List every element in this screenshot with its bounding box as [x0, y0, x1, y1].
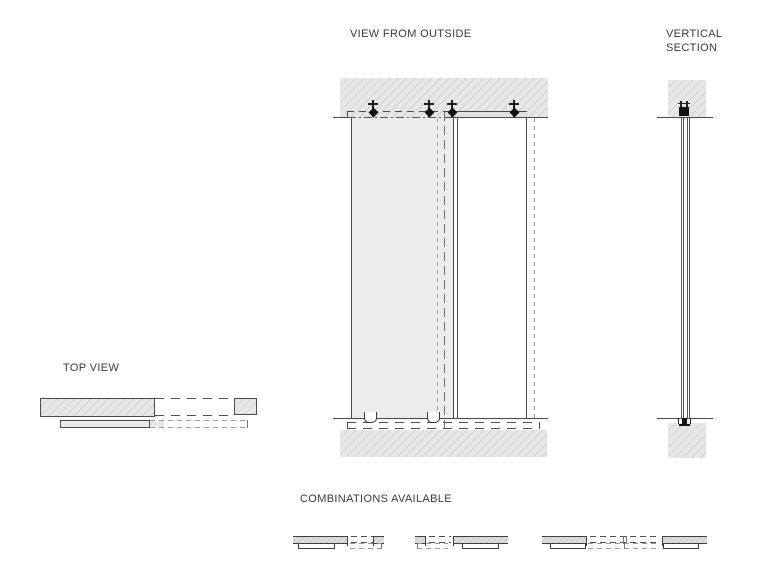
combo1-panel-open-tick — [381, 543, 382, 549]
combo1-panel-open-bottom-dash — [350, 548, 381, 549]
fixed-panel-left-edge-inner — [457, 118, 458, 418]
combo1-panel-open-top-dash — [350, 543, 381, 544]
hidden-floor-track-top-dash — [347, 422, 540, 423]
combo3-opening-top-dash — [590, 536, 658, 537]
track-bracket-icon — [508, 100, 520, 118]
bottom-guide-icon — [678, 418, 691, 428]
floor-guide-icon — [427, 412, 440, 423]
combo2-panel-open-top-dash — [417, 543, 448, 544]
combo2-panel-open-tick — [417, 543, 418, 549]
plan-opening-top-dash — [155, 398, 235, 399]
combo1-opening-top-dash — [351, 536, 373, 537]
track-bracket-icon — [367, 100, 379, 118]
view-from-outside-title: VIEW FROM OUTSIDE — [350, 27, 471, 41]
section-floor-hatch — [668, 423, 706, 458]
combo1-pier-hook — [373, 536, 374, 546]
technical-drawing-sliding-door: VIEW FROM OUTSIDE VERTICAL SECTION TOP V… — [0, 0, 768, 573]
hidden-floor-track-bottom-dash — [347, 428, 540, 429]
hidden-edge-behind-sliding-panel — [437, 118, 438, 418]
combo1-panel — [298, 543, 335, 549]
fixed-panel-left-edge-outer — [453, 118, 454, 418]
plan-panel-open-bottom-dash — [150, 427, 248, 428]
plan-right-pier — [234, 398, 257, 415]
combo3-wall-left-hook — [586, 536, 587, 546]
top-view-title: TOP VIEW — [63, 361, 119, 375]
combo2-opening-top-dash — [429, 536, 451, 537]
plan-panel-open-end-tick — [247, 420, 248, 428]
hidden-track-left-tick — [347, 111, 348, 118]
hidden-floor-track-right-tick — [539, 422, 540, 429]
plan-sliding-panel — [60, 420, 150, 428]
combo2-pier-hook — [425, 536, 426, 546]
combo3-panel-open-bottom-dash — [588, 548, 658, 549]
track-bracket-icon — [423, 100, 435, 118]
section-glass-pane-sliding — [681, 118, 684, 418]
plan-opening-bottom-dash — [155, 415, 235, 416]
plan-wall-bar — [40, 398, 155, 417]
floor-guide-icon — [364, 412, 377, 423]
hidden-floor-track-left-tick — [347, 422, 348, 429]
track-bracket-icon — [446, 100, 458, 118]
combo3-panel-open-top-dash — [588, 543, 658, 544]
section-glass-pane-fixed — [687, 118, 690, 418]
panel-junction-centerline — [444, 112, 445, 428]
section-ceiling-line — [657, 117, 713, 118]
combo3-panel-left — [550, 543, 586, 549]
fixed-panel — [458, 118, 526, 418]
fixed-panel-right-edge — [526, 118, 527, 418]
combo3-panel-center-tick — [624, 543, 625, 549]
combo3-panel-right — [663, 543, 699, 549]
combo2-wall-hook — [453, 536, 454, 546]
floor-hatch — [340, 430, 547, 457]
combo1-wall-hook — [347, 536, 348, 546]
combinations-title: COMBINATIONS AVAILABLE — [300, 492, 452, 506]
combo2-panel — [462, 543, 499, 549]
hidden-edge-right-jamb — [534, 118, 535, 418]
plan-panel-open-top-dash — [150, 420, 248, 421]
top-fixing-icon — [677, 101, 691, 117]
combo2-panel-open-bottom-dash — [417, 548, 448, 549]
vertical-section-title: VERTICAL SECTION — [666, 27, 722, 55]
